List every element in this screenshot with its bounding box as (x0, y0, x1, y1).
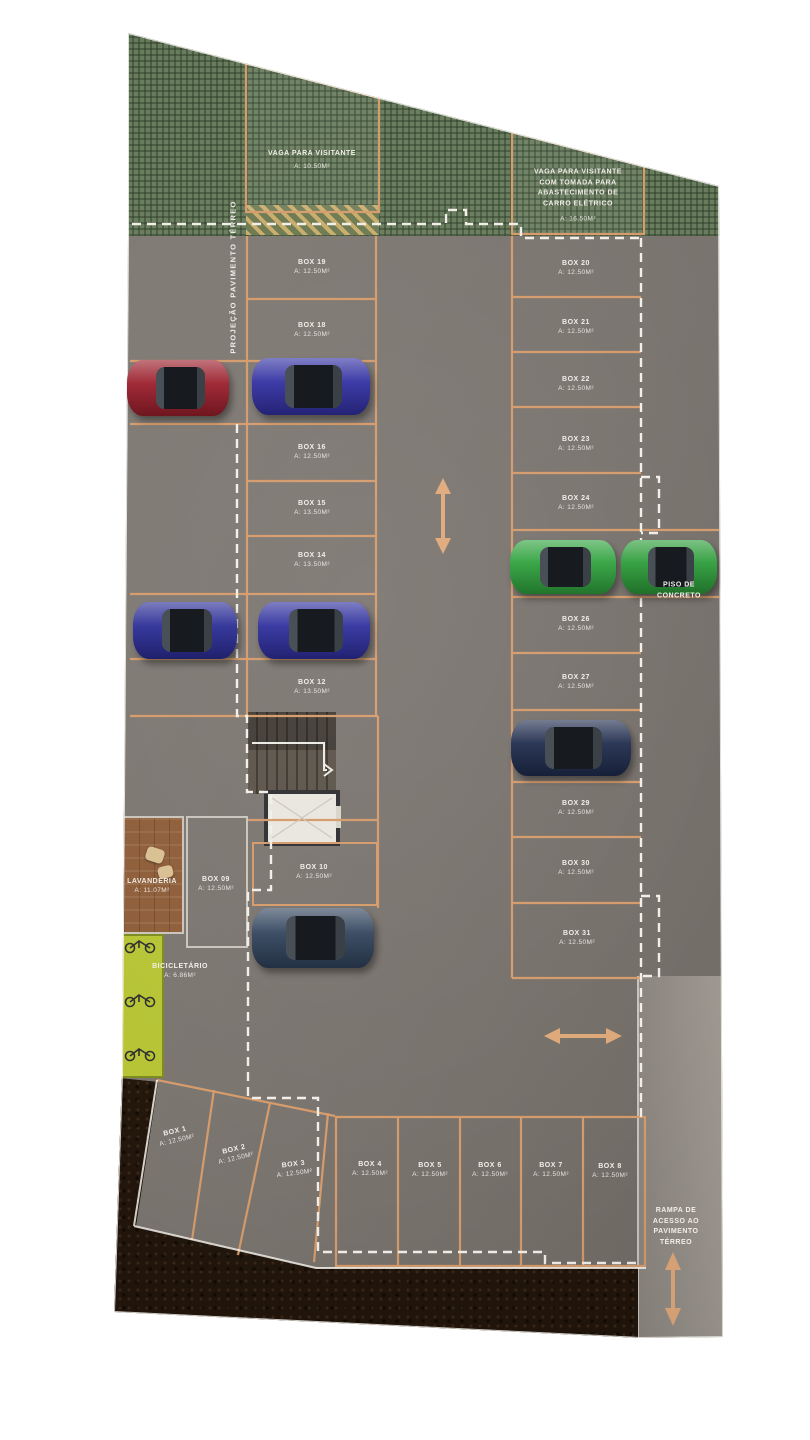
box-19-label: BOX 19A: 12.50m² (294, 259, 330, 275)
box-30-label: BOX 30A: 12.50m² (558, 860, 594, 876)
box-12-label: BOX 12A: 13.50m² (294, 679, 330, 695)
car-cabin (540, 547, 591, 587)
green-car-1 (510, 540, 616, 594)
box-16-label: BOX 16A: 12.50m² (294, 444, 330, 460)
box-5-label: BOX 5A: 12.50m² (412, 1162, 448, 1178)
steel-blue-car (252, 908, 374, 968)
box-29-label: BOX 29A: 12.50m² (558, 800, 594, 816)
laundry-room (122, 816, 184, 934)
red-car (127, 360, 229, 416)
car-cabin (285, 365, 342, 407)
car-cabin (162, 609, 212, 651)
elevator-door (336, 806, 341, 828)
box-21-label: BOX 21A: 12.50m² (558, 319, 594, 335)
box-8-label: BOX 8A: 12.50m² (592, 1163, 628, 1179)
blue-car-3 (258, 602, 370, 659)
blue-car-2 (133, 602, 237, 659)
blue-car-1 (252, 358, 370, 415)
box-24-label: BOX 24A: 12.50m² (558, 495, 594, 511)
box-23-label: BOX 23A: 12.50m² (558, 436, 594, 452)
landscape-strip (126, 28, 726, 236)
box-14-label: BOX 14A: 13.50m² (294, 552, 330, 568)
concrete-floor-label: PISO DE CONCRETO (648, 581, 710, 604)
marble-wall-strip (112, 812, 124, 942)
car-cabin (156, 367, 205, 408)
box-4-label: BOX 4A: 12.50m² (352, 1161, 388, 1177)
navy-car (511, 720, 631, 776)
hatched-strip (246, 205, 379, 235)
bicycle-area (118, 934, 164, 1078)
box-10-label: BOX 10A: 12.50m² (296, 864, 332, 880)
projection-side-label: PROJEÇÃO PAVIMENTO TÉRREO (229, 200, 238, 353)
box-22-label: BOX 22A: 12.50m² (558, 376, 594, 392)
floor-plan-canvas: PROJEÇÃO PAVIMENTO TÉRREO VAGA PARA VISI… (0, 0, 810, 1440)
box-09-label: BOX 09A: 12.50m² (198, 876, 234, 892)
box-27-label: BOX 27A: 12.50m² (558, 674, 594, 690)
access-ramp (637, 976, 727, 1340)
ramp-label: RAMPA DE ACESSO AO PAVIMENTO TÉRREO (644, 1206, 708, 1250)
box-6-label: BOX 6A: 12.50m² (472, 1162, 508, 1178)
box-26-label: BOX 26A: 12.50m² (558, 616, 594, 632)
laundry-label: LAVANDERIAA: 11.07m² (127, 878, 177, 894)
car-cabin (545, 727, 603, 768)
box-31-label: BOX 31A: 12.50m² (559, 930, 595, 946)
box-15-label: BOX 15A: 13.50m² (294, 500, 330, 516)
visitor-spot-2-label: VAGA PARA VISITANTE COM TOMADA PARA ABAS… (526, 168, 630, 225)
box-18-label: BOX 18A: 12.50m² (294, 322, 330, 338)
elevator (264, 790, 340, 846)
bicycle-label: BICICLETÁRIOA: 6.86m² (152, 963, 208, 979)
visitor-spot-1-label: VAGA PARA VISITANTE A: 10.50m² (252, 149, 372, 171)
car-cabin (286, 916, 345, 960)
box-20-label: BOX 20A: 12.50m² (558, 260, 594, 276)
box-7-label: BOX 7A: 12.50m² (533, 1162, 569, 1178)
car-cabin (289, 609, 343, 651)
staircase (248, 712, 336, 794)
site-area: PROJEÇÃO PAVIMENTO TÉRREO VAGA PARA VISI… (0, 0, 810, 1440)
